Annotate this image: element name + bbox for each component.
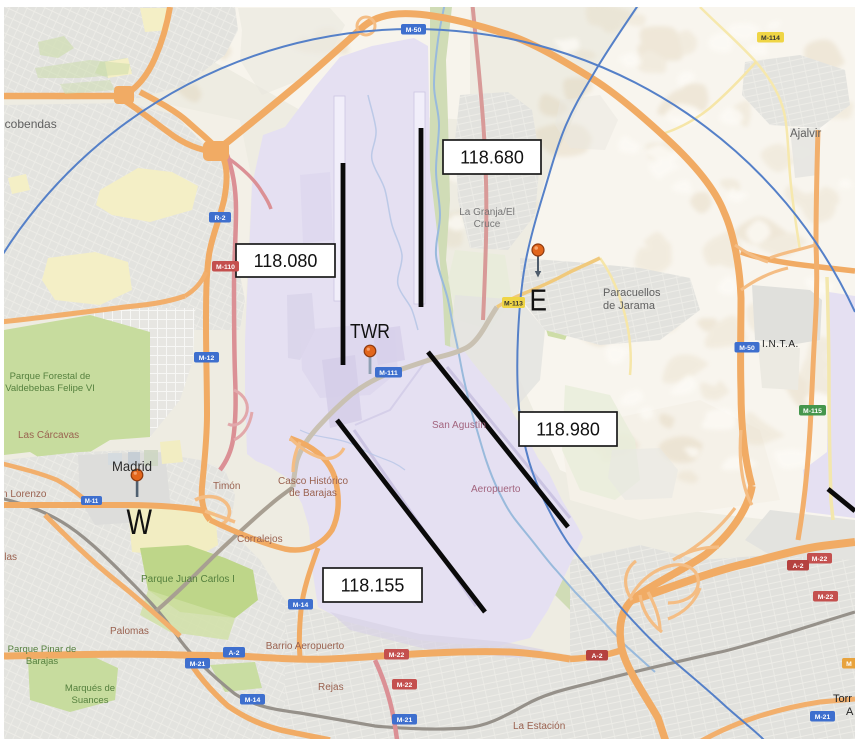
svg-text:M-21: M-21 <box>815 714 831 721</box>
svg-text:n Lorenzo: n Lorenzo <box>2 489 47 500</box>
svg-text:M-12: M-12 <box>199 355 215 362</box>
svg-text:M-14: M-14 <box>245 697 261 704</box>
svg-text:A-2: A-2 <box>793 563 804 570</box>
svg-text:R-2: R-2 <box>215 215 226 222</box>
svg-text:118.080: 118.080 <box>254 251 318 271</box>
svg-text:Barajas: Barajas <box>26 656 58 667</box>
svg-text:M-115: M-115 <box>803 408 822 415</box>
svg-text:Palomas: Palomas <box>110 626 149 637</box>
svg-text:Ajalvir: Ajalvir <box>790 128 821 140</box>
svg-text:Aeropuerto: Aeropuerto <box>471 484 521 495</box>
svg-text:M-111: M-111 <box>379 370 398 377</box>
svg-text:A-2: A-2 <box>229 650 240 657</box>
svg-text:Cruce: Cruce <box>474 219 501 230</box>
svg-text:Corralejos: Corralejos <box>237 534 283 545</box>
svg-text:M-114: M-114 <box>761 35 780 42</box>
svg-text:Las Cárcavas: Las Cárcavas <box>18 430 79 441</box>
svg-text:Rejas: Rejas <box>318 682 344 693</box>
svg-text:Parque Forestal de: Parque Forestal de <box>10 371 91 382</box>
svg-text:TWR: TWR <box>350 320 390 343</box>
svg-text:de Barajas: de Barajas <box>289 488 337 499</box>
svg-text:A: A <box>846 706 854 718</box>
svg-text:M-110: M-110 <box>216 264 235 271</box>
svg-text:M-22: M-22 <box>818 594 834 601</box>
svg-text:M-113: M-113 <box>504 301 523 308</box>
svg-text:Parque Juan Carlos I: Parque Juan Carlos I <box>141 574 235 585</box>
svg-text:lcobendas: lcobendas <box>2 117 57 131</box>
svg-text:La Estación: La Estación <box>513 721 565 732</box>
svg-text:M-22: M-22 <box>812 556 828 563</box>
svg-text:118.155: 118.155 <box>341 576 405 596</box>
svg-text:M-21: M-21 <box>190 661 206 668</box>
svg-text:M: M <box>846 661 852 668</box>
svg-text:Suances: Suances <box>72 695 109 706</box>
svg-text:M-22: M-22 <box>397 682 413 689</box>
svg-text:118.680: 118.680 <box>460 148 524 168</box>
svg-text:de Jarama: de Jarama <box>603 300 656 312</box>
svg-text:118.980: 118.980 <box>536 420 600 440</box>
svg-text:Paracuellos: Paracuellos <box>603 287 661 299</box>
svg-text:M-50: M-50 <box>739 345 755 352</box>
svg-text:E: E <box>530 283 548 318</box>
svg-text:Barrio Aeropuerto: Barrio Aeropuerto <box>266 641 345 652</box>
svg-text:Torr: Torr <box>833 693 852 705</box>
svg-text:M-14: M-14 <box>293 602 309 609</box>
svg-text:La Granja/El: La Granja/El <box>459 207 515 218</box>
svg-text:I.N.T.A.: I.N.T.A. <box>762 339 799 350</box>
svg-text:M-22: M-22 <box>389 652 405 659</box>
svg-text:Parque Pinar de: Parque Pinar de <box>8 644 77 655</box>
svg-text:Madrid: Madrid <box>112 458 152 474</box>
svg-text:llas: llas <box>2 552 17 563</box>
svg-text:M-50: M-50 <box>406 27 422 34</box>
svg-text:M-11: M-11 <box>85 499 99 505</box>
svg-text:San Agustín: San Agustín <box>432 420 486 431</box>
svg-text:W: W <box>127 503 153 542</box>
svg-text:M-21: M-21 <box>397 717 413 724</box>
svg-text:Valdebebas Felipe VI: Valdebebas Felipe VI <box>5 383 95 394</box>
svg-text:Timón: Timón <box>213 481 240 492</box>
svg-text:A-2: A-2 <box>592 653 603 660</box>
svg-text:Casco Histórico: Casco Histórico <box>278 476 348 487</box>
svg-text:Marqués de: Marqués de <box>65 683 115 694</box>
